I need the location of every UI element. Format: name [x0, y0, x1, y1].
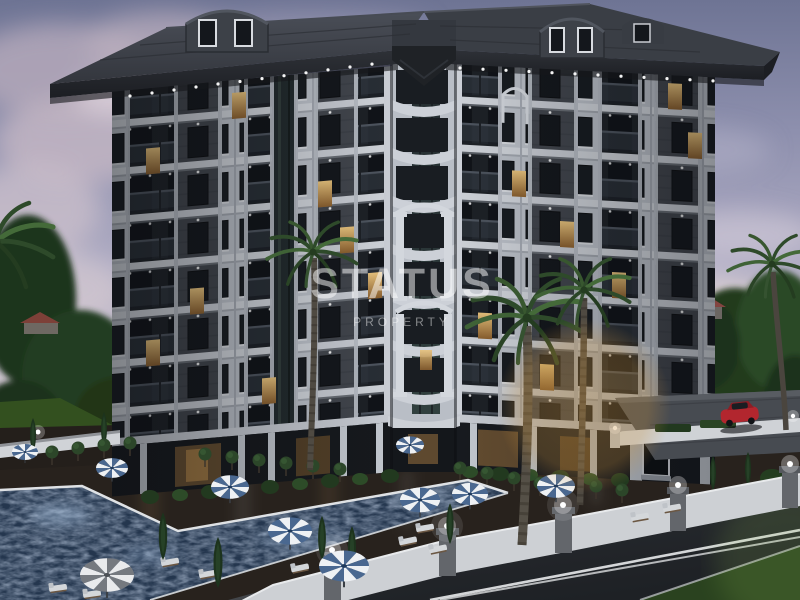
roof-dormer: [186, 11, 268, 52]
center-facade: [388, 52, 460, 472]
left-wing-facade: [112, 66, 392, 496]
hedge: [655, 424, 691, 432]
property-render-photo: STATUS PROPERTY: [0, 0, 800, 600]
roof-dormer: [540, 19, 604, 58]
render-scene: [0, 0, 800, 600]
